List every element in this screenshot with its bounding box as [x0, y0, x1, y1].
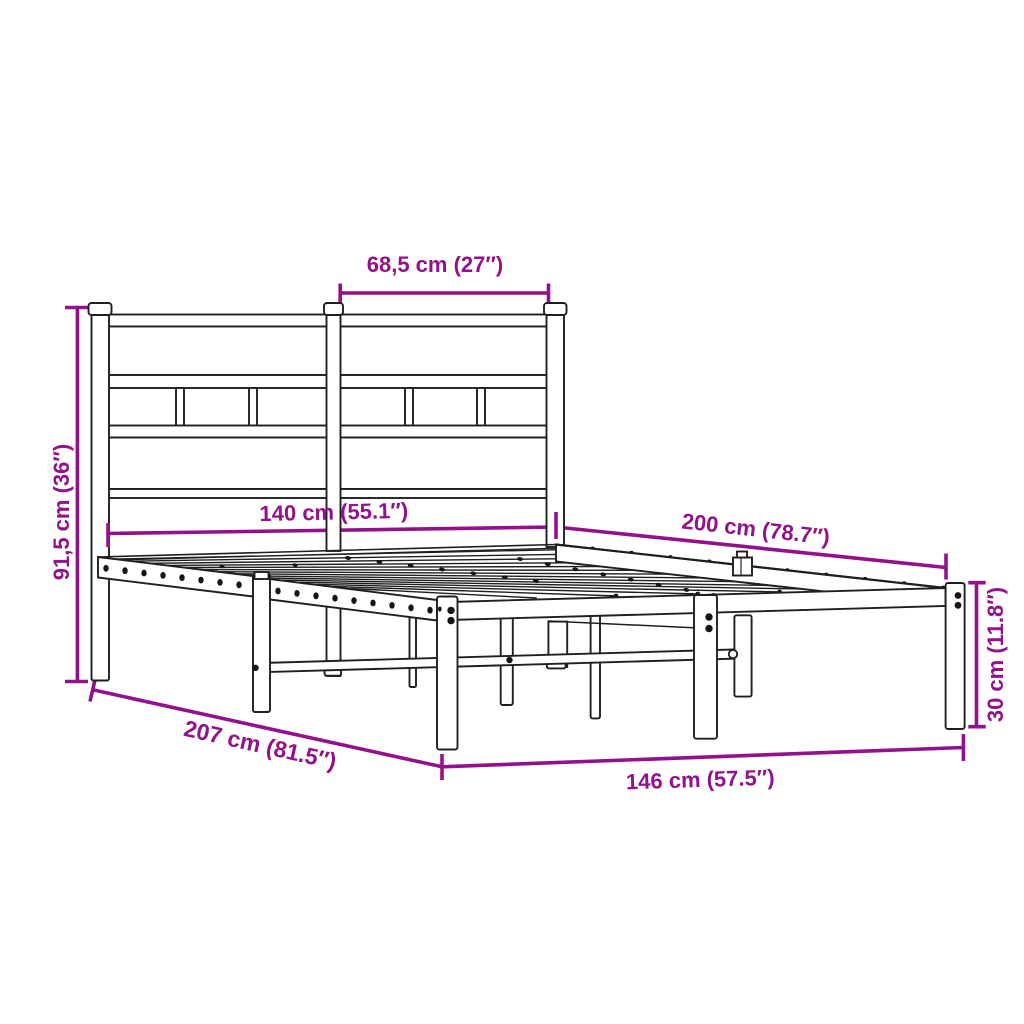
svg-text:146 cm (57.5″): 146 cm (57.5″) [626, 765, 775, 795]
svg-text:30 cm (11.8″): 30 cm (11.8″) [983, 587, 1008, 722]
svg-text:68,5 cm (27″): 68,5 cm (27″) [367, 252, 504, 277]
svg-text:91,5 cm (36″): 91,5 cm (36″) [49, 444, 74, 581]
svg-text:140 cm (55.1″): 140 cm (55.1″) [259, 498, 408, 526]
